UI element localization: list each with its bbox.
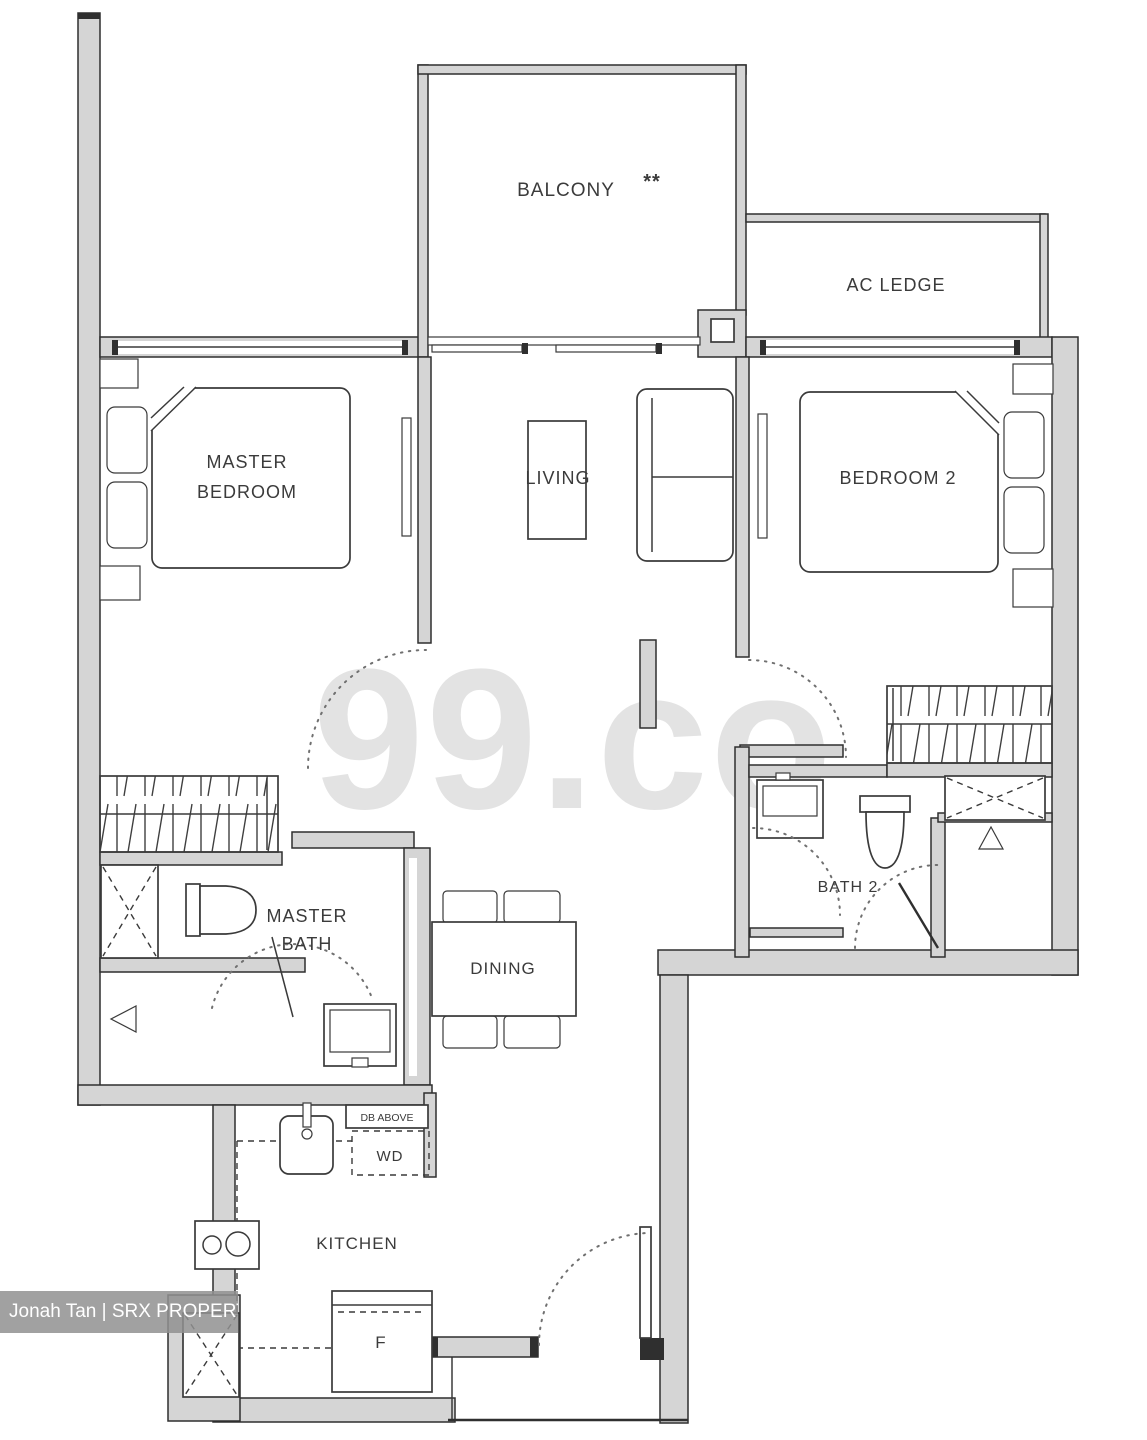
pillow [1004,487,1044,553]
window-tick [1014,340,1020,355]
wall-bath-mid [100,958,305,972]
sliding-panel [432,345,522,352]
ac-ledge-wall-right [1040,214,1048,340]
panel-tick [522,343,528,354]
door-panel [402,418,411,536]
toilet-master-icon [200,886,256,934]
vanity-tap [352,1058,368,1067]
toilet-bath2-icon [866,812,904,868]
toilet-master-tank [186,884,200,936]
wall-stub-hall [640,640,656,728]
pillow [107,407,147,473]
room-dining: DINING [432,891,576,1048]
label-ac-ledge: AC LEDGE [846,275,945,295]
floor-trap-icon [111,1006,136,1032]
label-living: LIVING [525,468,590,488]
door-panel [758,414,767,538]
sink-tap [776,773,790,780]
wall-bath-entry [292,832,414,848]
dining-chair [504,1016,560,1048]
room-living: LIVING [525,389,733,561]
dining-chair [504,891,560,923]
wall-bottom-right [658,950,1078,975]
bedside-table [100,566,140,600]
bedside-table [100,359,138,388]
bedside-table [1013,569,1053,607]
door-leaf [640,1227,651,1338]
door-hinge-block [640,1338,664,1360]
vanity-basin [330,1010,390,1052]
window-tick [112,340,118,355]
top-labels: BALCONY ** AC LEDGE [517,171,945,295]
wall-bath-top [100,852,282,865]
wall-entry-stub [430,1337,538,1357]
room-bath-2: BATH 2 [753,773,1045,948]
wall-bath2-right [931,818,945,957]
wall-cap [78,13,100,19]
label-fridge: F [375,1333,386,1352]
bulkhead-bath2 [740,745,843,757]
ac-ledge-wall-top [746,214,1045,222]
room-master-bedroom: MASTER BEDROOM [100,359,426,768]
floorplan-page: 99.co [0,0,1147,1440]
balcony-sliding-door [428,337,700,354]
ac-unit-box [945,776,1045,820]
bath-door-channel [409,858,417,1076]
label-master-bath: BATH [282,934,333,954]
bed-master [152,388,350,568]
wall-kitchen-bottom [213,1398,455,1422]
label-master-bath: MASTER [266,906,347,926]
sliding-panel [556,345,656,352]
balcony-wall-left [418,65,428,357]
credit-band: Jonah Tan | SRX PROPERTY [0,1291,238,1333]
balcony-wall-top [418,65,746,74]
label-bedroom-2: BEDROOM 2 [839,468,956,488]
dining-chair [443,891,497,923]
sink-tap [303,1103,311,1127]
wall-lower-right [660,975,688,1423]
wall-left-strip [78,13,100,1105]
label-kitchen: KITCHEN [316,1234,398,1253]
pillow [1004,412,1044,478]
door-swing-arc [539,1233,651,1345]
label-balcony-note: ** [643,171,661,193]
column-core [711,319,734,342]
wall-bath2-left [735,747,749,957]
label-balcony: BALCONY [517,180,615,201]
partition-master-living [418,357,431,643]
window-tick [760,340,766,355]
panel-tick [656,343,662,354]
partition-living-bedroom2 [736,357,749,657]
pillow [107,482,147,548]
label-master-bedroom: BEDROOM [197,482,297,502]
door-swing-arc [753,828,840,915]
wall-bath2-top [749,765,887,777]
sink-basin [763,786,817,816]
wall-wardrobe2-bottom [887,763,1052,777]
door-swing-arc [855,865,938,948]
floorplan-canvas: MASTER BEDROOM LIVING BEDROOM 2 [0,0,1147,1440]
label-master-bedroom: MASTER [206,452,287,472]
floor-trap-icon [979,827,1003,849]
wall-cap [530,1337,538,1357]
label-bath-2: BATH 2 [818,879,879,896]
entry-door [539,1227,651,1345]
door-swing-arc [749,660,846,757]
bedside-table [1013,364,1053,394]
toilet-bath2-tank [860,796,910,812]
label-dining: DINING [470,959,536,978]
sink-drain [302,1129,312,1139]
balcony-wall-right [736,65,746,315]
door-swing-arc [308,650,426,768]
bulkhead-bath2-low [750,928,843,937]
wall-bath-bottom [78,1085,432,1105]
label-wd: WD [377,1148,404,1165]
wall-right [1052,337,1078,975]
dining-chair [443,1016,497,1048]
window-tick [402,340,408,355]
label-db-above: DB ABOVE [360,1112,413,1124]
